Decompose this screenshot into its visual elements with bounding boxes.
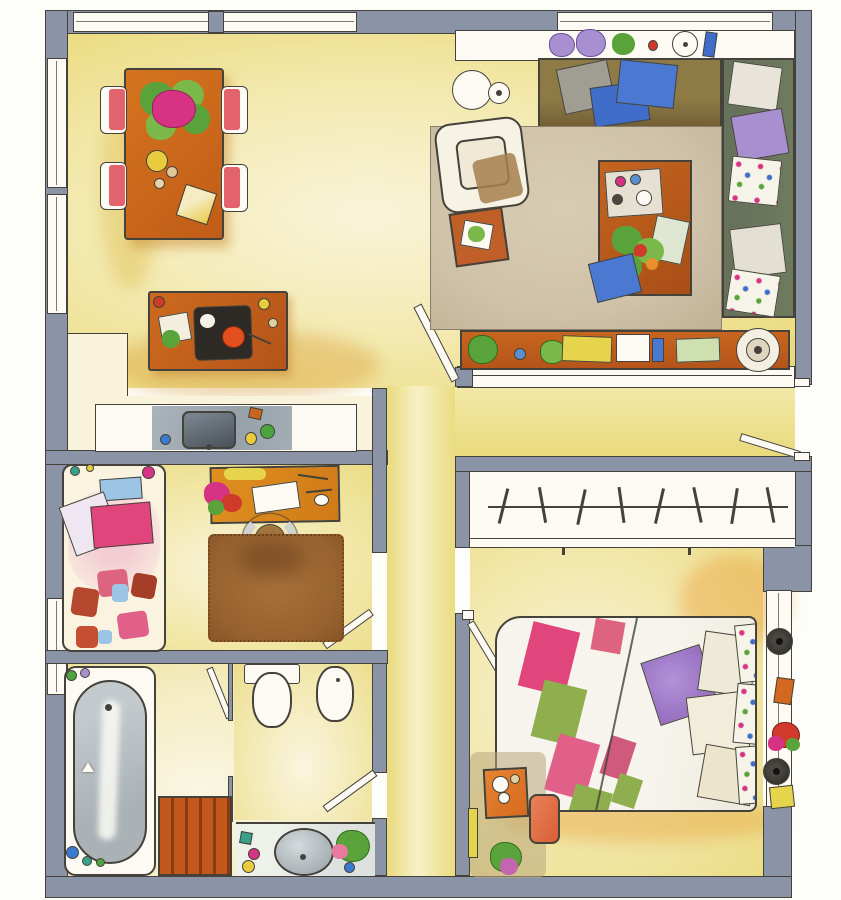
bedroom-floor-plant-flower bbox=[500, 858, 518, 875]
bathtub-drain bbox=[105, 704, 112, 711]
bed-patch bbox=[130, 572, 158, 600]
dressing-table-cup bbox=[498, 792, 510, 804]
floor-entrance-corridor bbox=[455, 386, 795, 458]
sofa-cushion-lilac bbox=[730, 108, 789, 162]
cooktop-tomato bbox=[222, 326, 245, 348]
dining-chair bbox=[221, 86, 248, 134]
tray-glass-blue bbox=[630, 174, 641, 185]
washbasin bbox=[274, 828, 334, 876]
island-item-red bbox=[153, 296, 165, 308]
vanity-item-blue bbox=[344, 862, 355, 873]
desk-cup bbox=[314, 494, 329, 506]
left-window-upper bbox=[47, 58, 67, 188]
rug-chair-shadow bbox=[238, 540, 304, 578]
bed-toy-yellow bbox=[86, 464, 94, 472]
floral-bolster bbox=[735, 745, 757, 805]
desk-flowers-red bbox=[222, 494, 242, 512]
closet-foot bbox=[688, 548, 691, 555]
floor-hallway bbox=[387, 386, 455, 878]
wall-lamp-dot bbox=[776, 638, 783, 645]
counter-item-green bbox=[260, 424, 275, 439]
tray-dot-dark bbox=[612, 194, 623, 205]
round-table bbox=[452, 70, 492, 110]
bedroom-flowers-magenta bbox=[768, 736, 784, 751]
dressing-table-plate bbox=[492, 776, 509, 793]
washbasin-drain bbox=[300, 854, 306, 860]
bath-item-purple bbox=[80, 668, 90, 678]
island-item-yellow bbox=[258, 298, 270, 310]
vanity-item-yellow bbox=[242, 860, 255, 873]
hanger-rod bbox=[488, 506, 788, 508]
left-window-lower bbox=[47, 194, 67, 314]
window-bench-tray bbox=[769, 785, 795, 809]
quilt-patch bbox=[567, 783, 613, 812]
bath-item-green bbox=[66, 670, 77, 681]
fruit-plate bbox=[146, 150, 168, 172]
bed-patch bbox=[70, 586, 100, 617]
sideboard-plant bbox=[468, 335, 498, 364]
sofa-cushion-blue bbox=[616, 59, 678, 109]
sofa-cushion-white bbox=[727, 61, 783, 112]
bidet-drain bbox=[336, 678, 340, 682]
counter-item-yellow bbox=[245, 432, 257, 445]
sideboard-book-white bbox=[616, 334, 650, 362]
shelf-plant-purple bbox=[576, 29, 606, 57]
floor-plan bbox=[0, 0, 841, 900]
wall-kids-bath bbox=[45, 650, 388, 664]
entrance-door-frame bbox=[794, 452, 810, 461]
dining-chair bbox=[100, 86, 127, 134]
sideboard-book-yellow bbox=[562, 335, 613, 363]
bouquet-flower-orange bbox=[646, 258, 658, 270]
desk-item-yellow bbox=[224, 468, 266, 480]
wall-bottom bbox=[45, 876, 792, 898]
wall-bath-right-upper bbox=[372, 663, 387, 773]
shelf-item-red bbox=[648, 40, 658, 51]
bed-toy-pink bbox=[142, 466, 155, 479]
chair-seat bbox=[224, 89, 240, 130]
desk-flowers-leaf bbox=[208, 500, 224, 515]
stool bbox=[529, 794, 560, 844]
shower-duckboard bbox=[158, 796, 232, 876]
closet-foot bbox=[562, 548, 565, 555]
dining-chair bbox=[221, 164, 248, 212]
bed-patch bbox=[112, 584, 128, 602]
floral-bolster bbox=[732, 683, 757, 745]
shelf-plant-purple bbox=[549, 33, 575, 57]
wall-bedroom-right-bottom bbox=[763, 806, 792, 878]
toilet-partition-upper bbox=[228, 663, 233, 721]
quilt-patch bbox=[599, 735, 636, 781]
toilet-bowl bbox=[252, 672, 292, 728]
bath-item-teal bbox=[82, 856, 92, 866]
bedroom-door-frame bbox=[462, 610, 474, 620]
wall-kids-right bbox=[372, 388, 387, 553]
counter-item-blue bbox=[160, 434, 171, 445]
record-player-hole bbox=[754, 346, 762, 354]
armchair-throw bbox=[471, 152, 524, 205]
bed-patch bbox=[76, 626, 98, 648]
fruit-item bbox=[166, 166, 178, 178]
bed-toy-teal bbox=[70, 466, 80, 476]
vanity-plant-flower bbox=[332, 844, 348, 859]
island-item-beige bbox=[268, 318, 278, 328]
side-table-plant bbox=[468, 226, 485, 242]
bath-item-blue bbox=[66, 846, 79, 859]
sideboard-cup-blue bbox=[514, 348, 526, 360]
chair-seat bbox=[109, 165, 125, 206]
fruit-item bbox=[154, 178, 165, 189]
sideboard-book-blue bbox=[652, 338, 664, 362]
sideboard-book-green bbox=[676, 337, 721, 363]
sink-drain bbox=[206, 444, 212, 450]
chair-seat bbox=[224, 167, 240, 208]
shelf-plant-green bbox=[612, 33, 635, 55]
table-plant-flowers bbox=[152, 90, 196, 128]
sofa-cushion-floral bbox=[725, 268, 781, 317]
counter-item-board bbox=[248, 407, 263, 420]
wall-closet-top bbox=[455, 456, 812, 472]
cup-dot bbox=[496, 90, 502, 96]
chair-seat bbox=[109, 89, 125, 130]
shelf-plate-dot bbox=[683, 42, 688, 47]
island-herbs bbox=[162, 330, 180, 348]
dining-chair bbox=[100, 162, 127, 210]
vanity-item-teal bbox=[239, 831, 253, 845]
cooktop-egg bbox=[200, 314, 215, 328]
sofa-cushion-floral bbox=[728, 156, 783, 207]
balcony-rail-line bbox=[460, 375, 792, 376]
vanity-item-pink bbox=[248, 848, 260, 860]
quilt-patch bbox=[590, 618, 625, 655]
wall-lamp-dot bbox=[773, 768, 780, 775]
tray-cup bbox=[636, 190, 652, 206]
wall-bedroom-right-top bbox=[763, 545, 812, 592]
bedroom-flowers-leaf bbox=[786, 738, 800, 751]
tray-glass-pink bbox=[615, 176, 626, 187]
dressing-table-item bbox=[510, 774, 520, 784]
wall-right-upper bbox=[795, 10, 812, 385]
armchair bbox=[433, 115, 531, 215]
wall-shelf-yellow bbox=[468, 808, 478, 858]
bed-patch bbox=[98, 630, 112, 644]
window-bench-book bbox=[773, 677, 794, 705]
bouquet-flower-red bbox=[634, 244, 647, 257]
closet-bottom-sill bbox=[470, 538, 795, 548]
bath-item-green bbox=[96, 858, 105, 867]
wall-kitchen-kids bbox=[45, 450, 388, 465]
top-window-mullion bbox=[208, 11, 224, 33]
entrance-door-frame bbox=[794, 378, 810, 387]
bed-patch bbox=[116, 610, 149, 640]
bed-blanket-pink bbox=[90, 501, 153, 548]
bathtub-faucet-mark bbox=[82, 762, 94, 772]
bidet bbox=[316, 666, 354, 722]
